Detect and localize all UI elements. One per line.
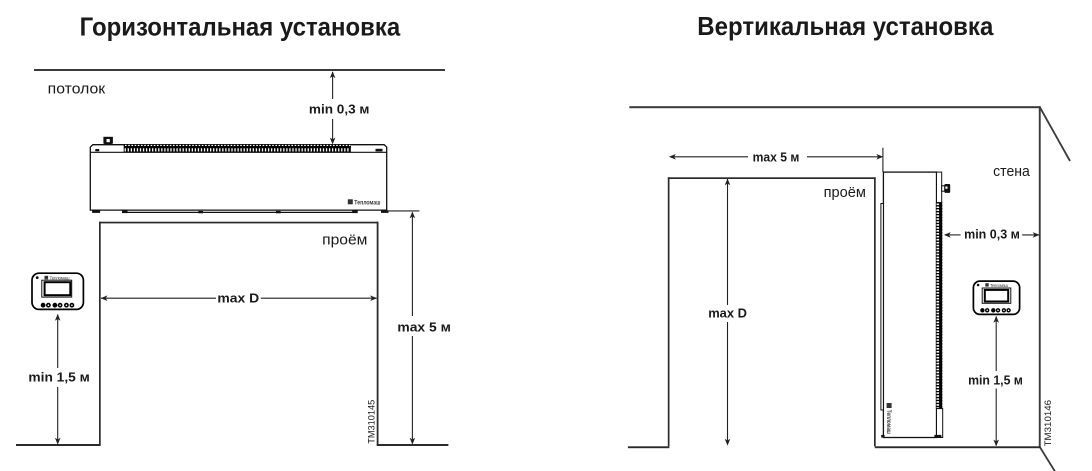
svg-text:Тепломаш: Тепломаш bbox=[885, 410, 892, 434]
svg-text:Тепломаш: Тепломаш bbox=[354, 200, 380, 207]
svg-text:min 1,5 м: min 1,5 м bbox=[28, 370, 89, 385]
svg-text:min 0,3 м: min 0,3 м bbox=[964, 226, 1020, 241]
svg-text:проём: проём bbox=[322, 231, 367, 248]
svg-text:min 0,3 м: min 0,3 м bbox=[309, 102, 370, 117]
svg-text:стена: стена bbox=[993, 163, 1030, 180]
svg-text:Вертикальная установка: Вертикальная установка bbox=[697, 11, 993, 41]
svg-text:max 5 м: max 5 м bbox=[753, 150, 800, 165]
svg-text:TM310145: TM310145 bbox=[367, 400, 378, 444]
svg-text:max D: max D bbox=[708, 306, 747, 321]
svg-text:max D: max D bbox=[217, 291, 259, 306]
svg-text:проём: проём bbox=[824, 184, 866, 201]
svg-text:Тепломаш: Тепломаш bbox=[990, 283, 1008, 288]
svg-text:min 1,5 м: min 1,5 м bbox=[968, 372, 1023, 387]
svg-text:max 5 м: max 5 м bbox=[397, 320, 451, 335]
svg-text:TM310146: TM310146 bbox=[1043, 400, 1054, 447]
svg-text:потолок: потолок bbox=[48, 81, 106, 97]
svg-text:Горизонтальная установка: Горизонтальная установка bbox=[80, 11, 401, 41]
